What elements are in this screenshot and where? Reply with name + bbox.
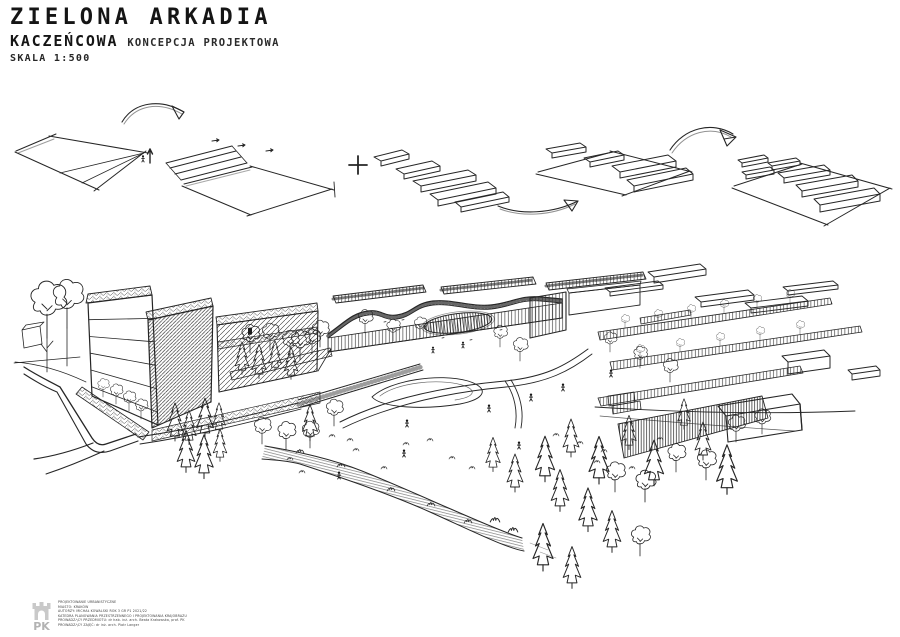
scale-label: SKALA 1:500 (10, 53, 280, 64)
field-bands (598, 298, 862, 458)
concept-step-final (732, 155, 892, 226)
plus-icon (349, 156, 367, 174)
fine-print: PROJEKTOWANIE URBANISTYCZNE MIASTO: KRAK… (58, 600, 187, 627)
concept-step-bars (374, 150, 509, 212)
title-block: ZIELONA ARKADIA KACZEŃCOWA KONCEPCJA PRO… (10, 5, 280, 64)
concept-step-blocks (536, 143, 693, 196)
board-drawing (0, 0, 900, 637)
people (337, 342, 612, 479)
footer-credits: PK PROJEKTOWANIE URBANISTYCZNE MIASTO: K… (31, 600, 187, 631)
logo-letters: PK (33, 620, 50, 631)
logo-arch (38, 611, 45, 621)
perspective-drawing (14, 264, 880, 588)
presentation-board: ZIELONA ARKADIA KACZEŃCOWA KONCEPCJA PRO… (0, 0, 900, 637)
concept-sequence (15, 104, 892, 226)
credit-line: PROWADZĄCY ZAJĘĆ: dr inż. arch. Piotr La… (58, 623, 187, 628)
transform-arrow-1-icon (122, 104, 184, 124)
subtitle: KONCEPCJA PROJEKTOWA (127, 37, 279, 49)
transform-arrow-2-icon (498, 200, 578, 214)
concept-step-site (15, 134, 153, 191)
university-logo: PK (31, 600, 52, 631)
deck-pond (420, 307, 495, 338)
project-name: KACZEŃCOWA (10, 32, 118, 50)
concept-step-strips (166, 139, 335, 216)
transform-arrow-3-icon (670, 127, 736, 153)
subtitle-row: KACZEŃCOWA KONCEPCJA PROJEKTOWA (10, 32, 280, 50)
access-road (15, 362, 149, 474)
left-edge-trees (14, 279, 84, 372)
background-slabs (333, 264, 838, 313)
page-title: ZIELONA ARKADIA (10, 5, 280, 30)
